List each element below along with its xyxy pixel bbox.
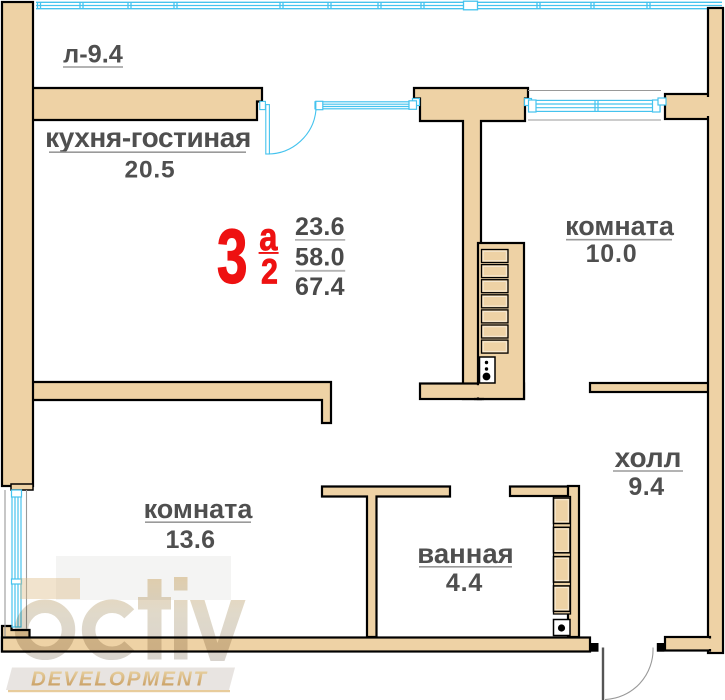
svg-text:58.0: 58.0 (295, 243, 345, 271)
svg-text:комната: комната (565, 211, 675, 241)
svg-text:2: 2 (261, 251, 278, 291)
svg-text:10.0: 10.0 (586, 240, 638, 268)
svg-text:л-9.4: л-9.4 (63, 41, 123, 69)
svg-text:холл: холл (615, 442, 682, 473)
svg-text:9.4: 9.4 (628, 473, 664, 501)
svg-text:ванная: ванная (417, 538, 513, 569)
svg-text:13.6: 13.6 (165, 526, 215, 554)
svg-text:3: 3 (217, 214, 248, 300)
svg-text:20.5: 20.5 (125, 157, 176, 184)
svg-text:DEVELOPMENT: DEVELOPMENT (31, 668, 208, 691)
svg-text:23.6: 23.6 (295, 213, 345, 241)
svg-text:комната: комната (144, 494, 254, 524)
svg-text:кухня-гостиная: кухня-гостиная (45, 122, 251, 153)
svg-text:4.4: 4.4 (446, 569, 483, 597)
svg-text:67.4: 67.4 (295, 273, 345, 301)
